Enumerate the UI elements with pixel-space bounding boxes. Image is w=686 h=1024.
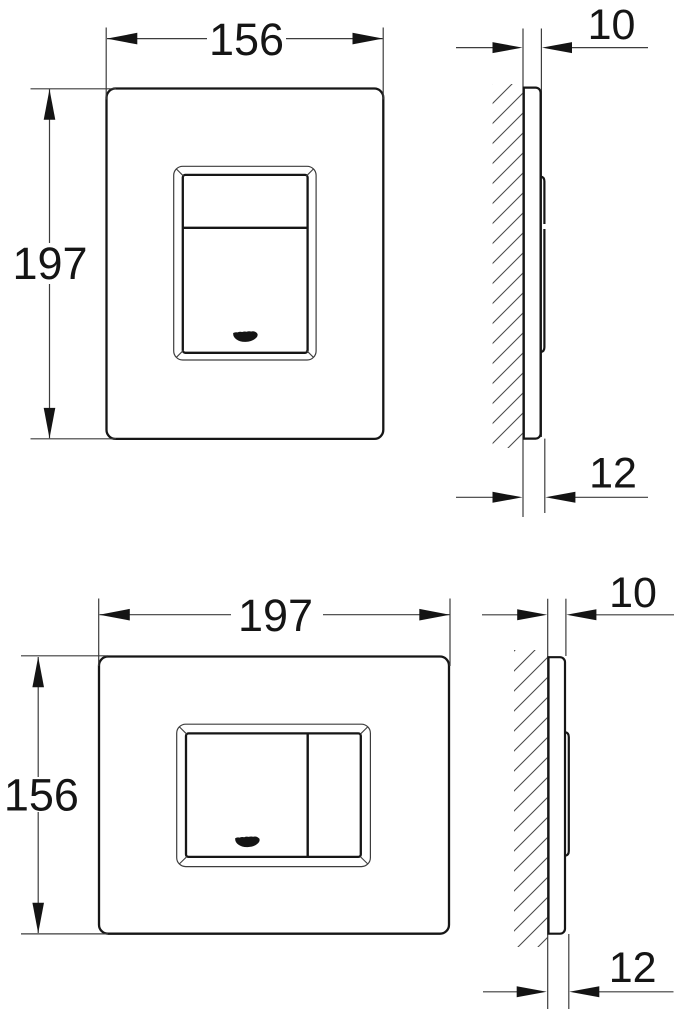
svg-text:12: 12 bbox=[609, 944, 657, 992]
svg-text:197: 197 bbox=[12, 238, 87, 289]
svg-text:10: 10 bbox=[609, 569, 657, 617]
svg-text:156: 156 bbox=[4, 770, 79, 821]
svg-text:197: 197 bbox=[238, 590, 313, 641]
svg-text:10: 10 bbox=[588, 1, 636, 49]
svg-text:12: 12 bbox=[589, 450, 637, 498]
svg-text:156: 156 bbox=[209, 14, 284, 65]
